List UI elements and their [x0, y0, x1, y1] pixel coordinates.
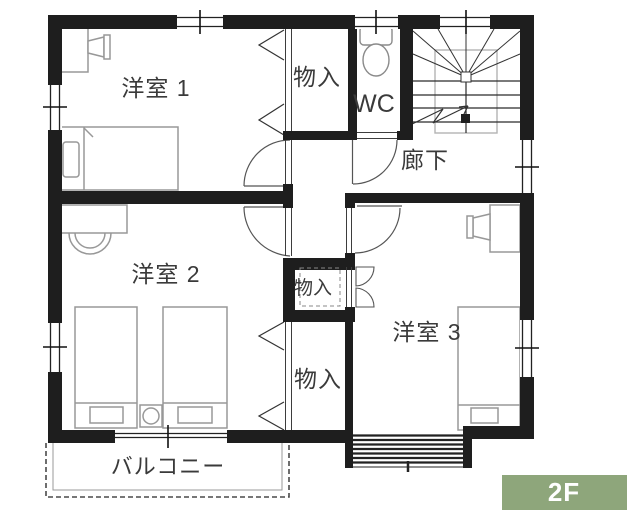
hallway-label: 廊下 — [401, 147, 449, 173]
closet-top-label: 物入 — [293, 64, 341, 90]
wall-room1-room2 — [48, 191, 293, 204]
toilet-bowl — [363, 44, 389, 76]
wall-closet-mid-south — [283, 310, 355, 322]
roof-hatch — [353, 436, 463, 473]
room3-label: 洋室 3 — [392, 319, 461, 345]
closet-mid-label: 物入 — [294, 277, 332, 299]
pillow — [63, 142, 79, 177]
stair-center-post — [461, 72, 471, 82]
desk-chair — [88, 37, 104, 57]
pillow-left — [90, 407, 123, 423]
wc-label: WC — [353, 90, 395, 118]
desk — [490, 205, 520, 252]
floor-plan: 洋室 1 物入 WC 廊下 洋室 2 物入 物入 洋室 3 バルコニー 2F — [0, 0, 640, 520]
wall-closet-mid-north — [283, 258, 355, 270]
desk — [57, 205, 127, 233]
pillow-right — [178, 407, 212, 423]
closet-low-label: 物入 — [294, 366, 342, 392]
balcony-label: バルコニー — [111, 454, 226, 479]
pillow — [471, 408, 498, 423]
desk-chair — [473, 214, 490, 240]
wall-room3-north — [345, 193, 534, 203]
wall-col-east-a — [345, 203, 355, 208]
room2-label: 洋室 2 — [131, 261, 200, 287]
room1-label: 洋室 1 — [121, 75, 190, 101]
wall-bottom-room3 — [463, 426, 534, 439]
wall-left — [48, 15, 62, 443]
nightstand-lamp — [143, 408, 159, 424]
floor-badge-label: 2F — [548, 477, 580, 507]
floor-badge: 2F — [502, 475, 627, 510]
furniture-room3 — [458, 205, 520, 430]
wall-hatch-east — [463, 439, 472, 468]
desk-chair-back — [467, 216, 473, 238]
wall-stairs-west — [400, 29, 413, 140]
stair-newel — [461, 114, 470, 123]
wall-col-west-mid — [283, 184, 293, 208]
wall-wc-south-left — [283, 131, 357, 140]
desk-chair-back — [104, 35, 110, 59]
floor-plan-page: 洋室 1 物入 WC 廊下 洋室 2 物入 物入 洋室 3 バルコニー 2F — [0, 0, 640, 520]
wall-col-east-low — [345, 322, 353, 468]
